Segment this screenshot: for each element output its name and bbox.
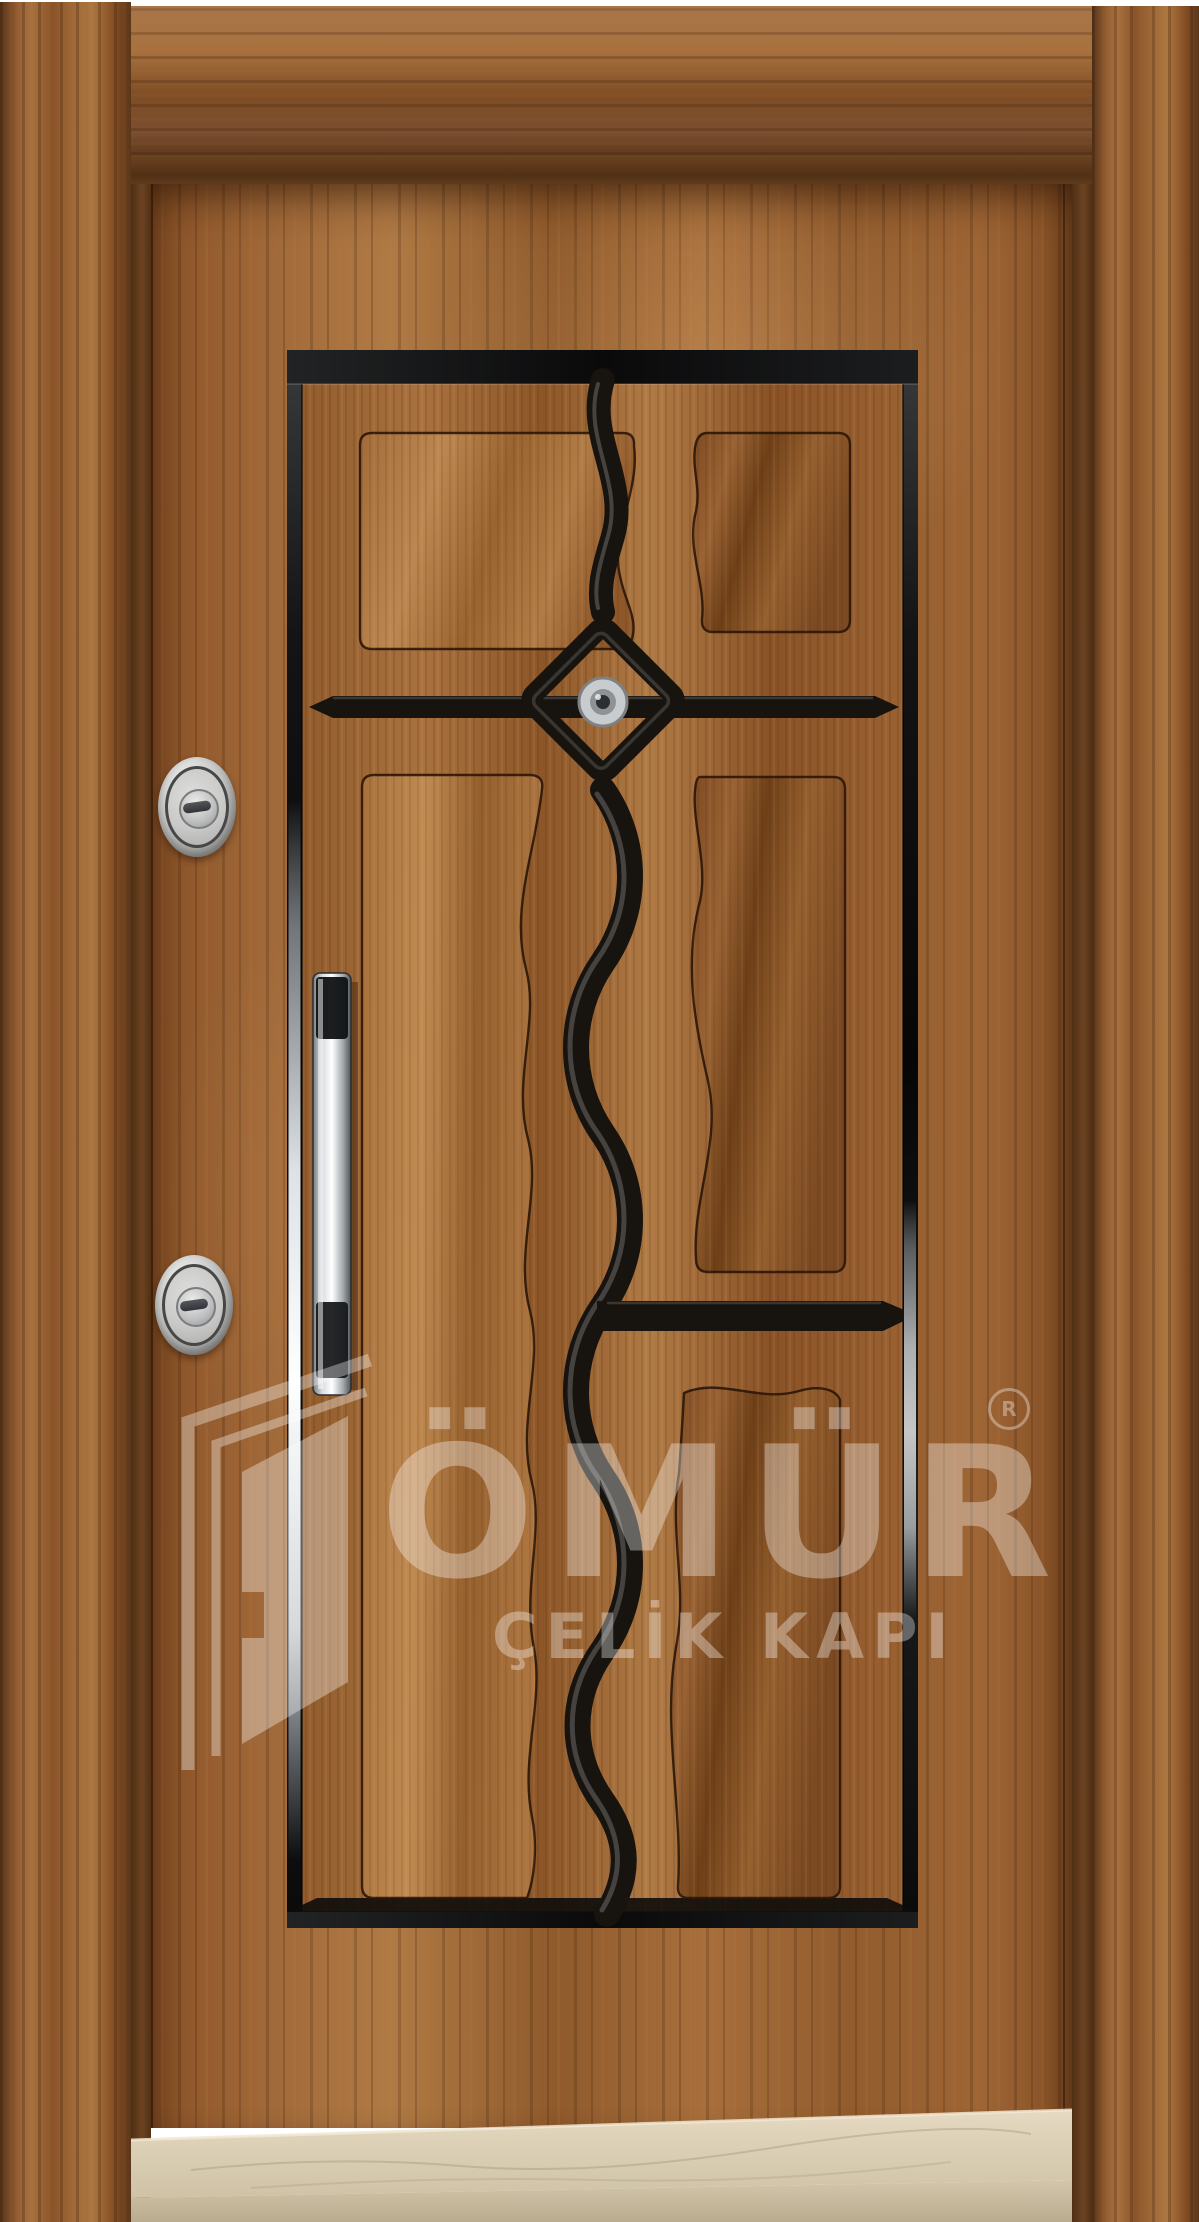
brand-door-logo-icon — [170, 1352, 385, 1772]
registered-trademark-icon: R — [988, 1388, 1030, 1430]
door-product-photo: ÖMÜR R ÇELİK KAPI — [0, 0, 1199, 2222]
brand-text: ÖMÜR — [380, 1422, 1068, 1604]
brand-watermark: ÖMÜR R ÇELİK KAPI — [0, 0, 1199, 2222]
marble-threshold — [131, 2100, 1072, 2222]
brand-tagline-text: ÇELİK KAPI — [492, 1600, 957, 1673]
